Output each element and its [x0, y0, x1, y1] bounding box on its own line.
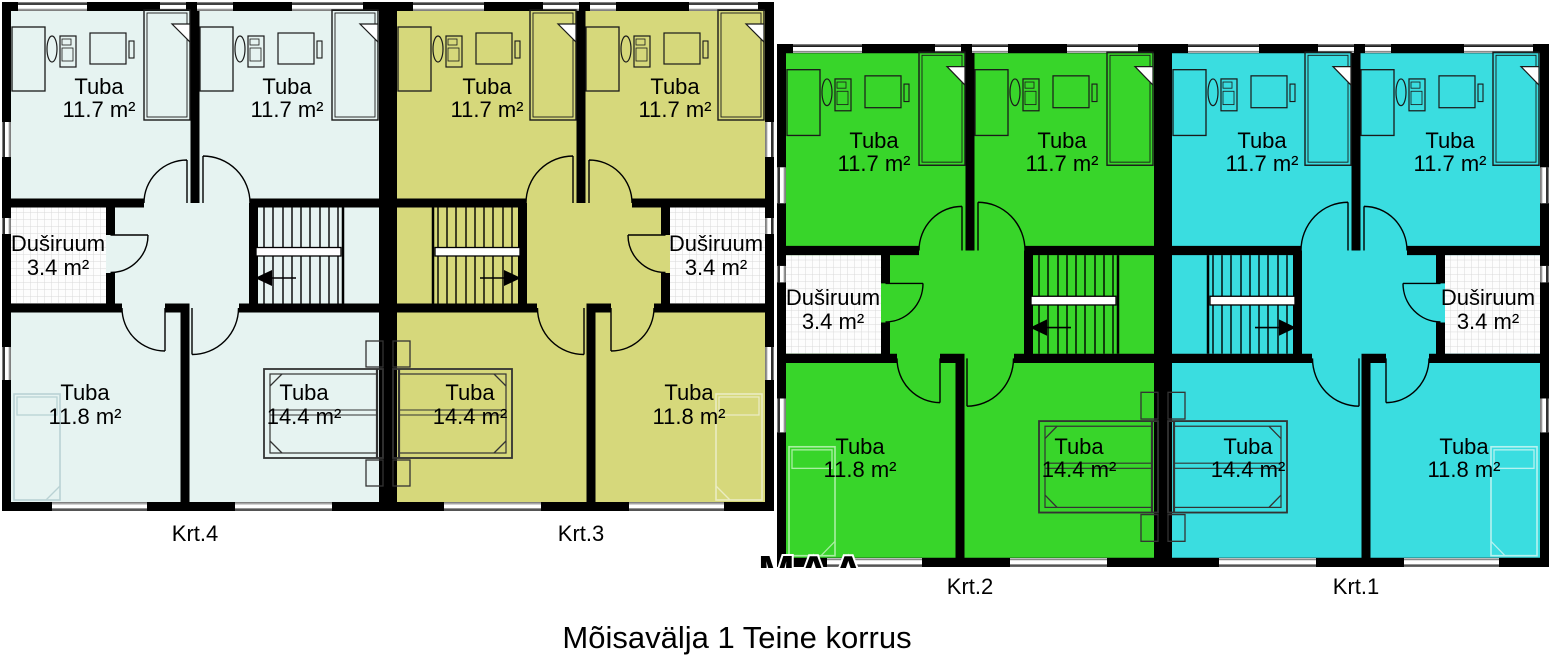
room-name-label: Tuba [1037, 128, 1087, 153]
floor-plan: MAA Tuba 11.7 m² Tuba 11.7 m² Duširuum 3… [0, 0, 1550, 665]
room-area-label: 3.4 m² [802, 309, 864, 334]
room-area-label: 11.7 m² [1414, 151, 1487, 176]
room-name-label: Duširuum [669, 231, 763, 256]
room-area-label: 11.7 m² [1026, 151, 1099, 176]
room-area-label: 3.4 m² [685, 255, 747, 280]
room-area-label: 11.8 m² [653, 404, 726, 429]
room-name-label: Duširuum [1441, 285, 1535, 310]
room-area-label: 3.4 m² [27, 255, 89, 280]
room-area-label: 11.7 m² [838, 151, 911, 176]
room-area-label: 14.4 m² [433, 404, 508, 429]
room-area-label: 14.4 m² [267, 404, 342, 429]
room-area-label: 11.7 m² [251, 97, 324, 122]
watermark-text: MAA [758, 547, 867, 596]
room-name-label: Tuba [262, 74, 312, 99]
room-name-label: Tuba [1425, 128, 1475, 153]
room-area-label: 11.7 m² [639, 97, 712, 122]
apartment-label: Krt.3 [558, 521, 604, 546]
room-area-label: 14.4 m² [1042, 457, 1117, 482]
room-area-label: 11.7 m² [1226, 151, 1299, 176]
room-name-label: Tuba [849, 128, 899, 153]
room-area-label: 11.7 m² [451, 97, 524, 122]
apartment-label: Krt.2 [947, 574, 993, 599]
room-area-label: 11.8 m² [824, 457, 897, 482]
room-name-label: Tuba [60, 380, 110, 405]
room-name-label: Tuba [445, 380, 495, 405]
room-name-label: Tuba [1439, 434, 1489, 459]
room-name-label: Duširuum [786, 285, 880, 310]
room-name-label: Tuba [1054, 434, 1104, 459]
room-area-label: 14.4 m² [1211, 457, 1286, 482]
room-name-label: Tuba [1223, 434, 1273, 459]
apartment-label: Krt.1 [1333, 574, 1379, 599]
apartment-label: Krt.4 [172, 521, 218, 546]
room-name-label: Tuba [279, 380, 329, 405]
room-name-label: Tuba [462, 74, 512, 99]
room-name-label: Tuba [664, 380, 714, 405]
room-name-label: Duširuum [11, 231, 105, 256]
room-area-label: 11.7 m² [63, 97, 136, 122]
room-area-label: 11.8 m² [1428, 457, 1501, 482]
room-area-label: 3.4 m² [1457, 309, 1519, 334]
room-name-label: Tuba [1237, 128, 1287, 153]
page-title: Mõisavälja 1 Teine korrus [562, 620, 911, 655]
room-name-label: Tuba [835, 434, 885, 459]
room-name-label: Tuba [74, 74, 124, 99]
room-name-label: Tuba [650, 74, 700, 99]
floor-plan-page: MAA Tuba 11.7 m² Tuba 11.7 m² Duširuum 3… [0, 0, 1550, 665]
room-area-label: 11.8 m² [49, 404, 122, 429]
